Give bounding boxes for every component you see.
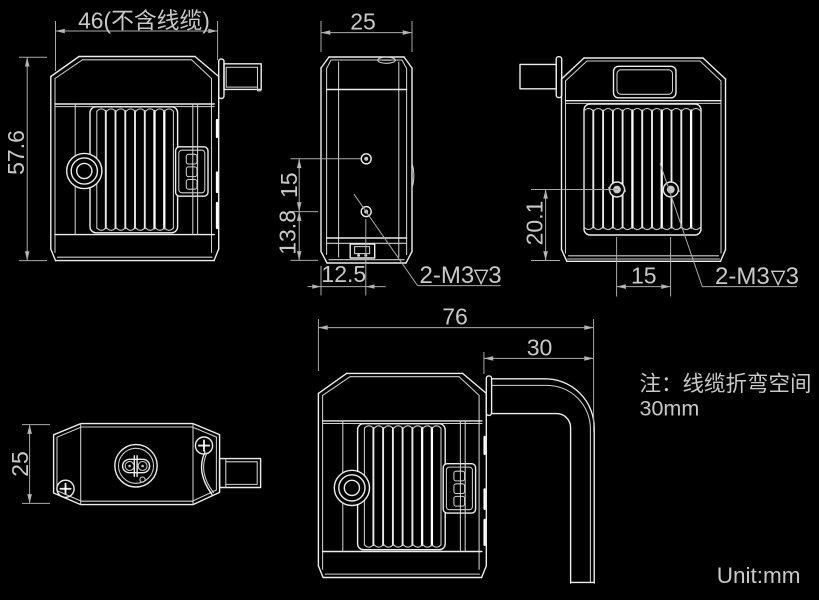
svg-text:15: 15 — [631, 263, 657, 289]
svg-text:25: 25 — [7, 451, 33, 477]
svg-text:Unit:mm: Unit:mm — [717, 563, 801, 588]
svg-text:3: 3 — [488, 262, 501, 289]
svg-text:2-M3: 2-M3 — [715, 263, 770, 290]
svg-text:76: 76 — [442, 304, 468, 330]
svg-text:12.5: 12.5 — [321, 261, 366, 287]
svg-text:2-M3: 2-M3 — [420, 262, 475, 289]
svg-text:注：线缆折弯空间: 注：线缆折弯空间 — [640, 372, 812, 396]
svg-text:57.6: 57.6 — [3, 130, 29, 175]
svg-text:13.8: 13.8 — [275, 210, 301, 255]
svg-text:30mm: 30mm — [640, 397, 700, 421]
svg-text:30: 30 — [527, 334, 553, 360]
svg-text:25: 25 — [350, 8, 376, 34]
svg-text:46(不含线缆): 46(不含线缆) — [78, 7, 210, 33]
svg-text:3: 3 — [786, 263, 799, 290]
svg-text:20.1: 20.1 — [522, 201, 548, 246]
svg-text:15: 15 — [276, 172, 302, 198]
